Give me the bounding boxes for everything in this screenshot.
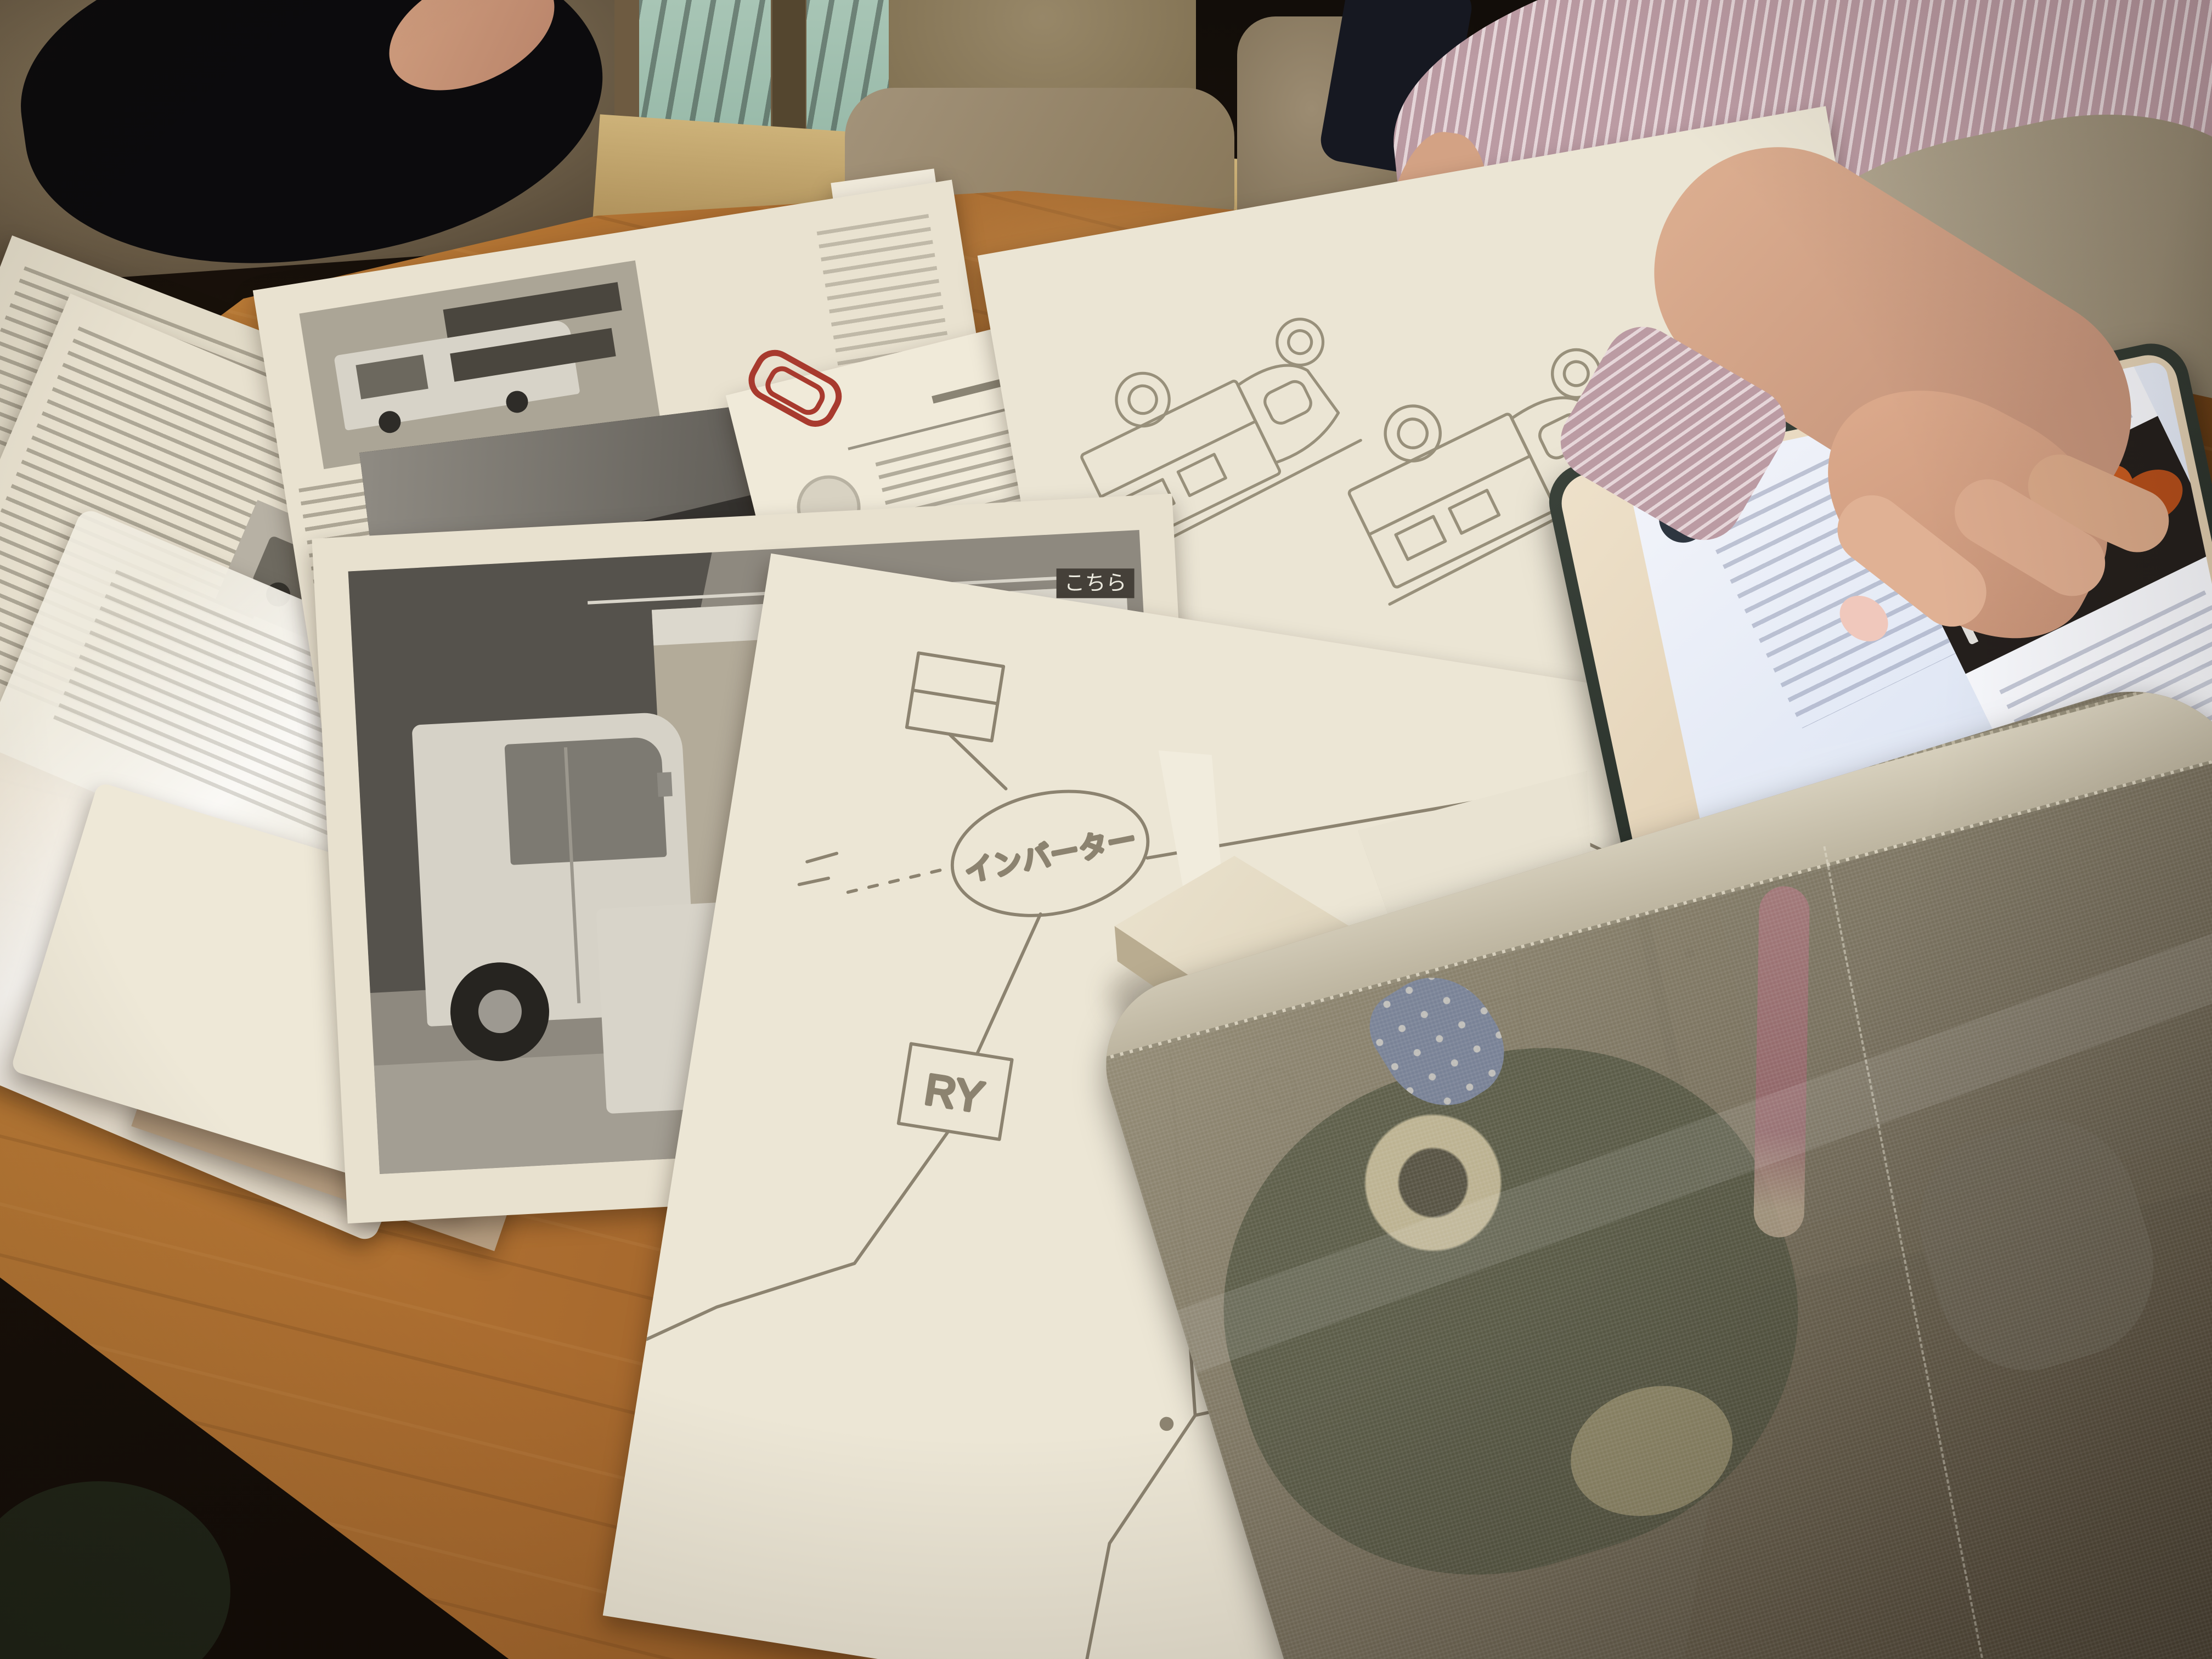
- relay-label: RY: [922, 1065, 988, 1122]
- cab-windshield: [504, 736, 667, 865]
- photo-pointer-label: こちら: [1064, 572, 1126, 595]
- cab-mirror: [657, 772, 672, 797]
- living-room-table-scene: こちら: [0, 0, 2212, 1659]
- wheel-hub: [477, 989, 523, 1034]
- photo-pointer-tag: こちら: [1056, 568, 1134, 598]
